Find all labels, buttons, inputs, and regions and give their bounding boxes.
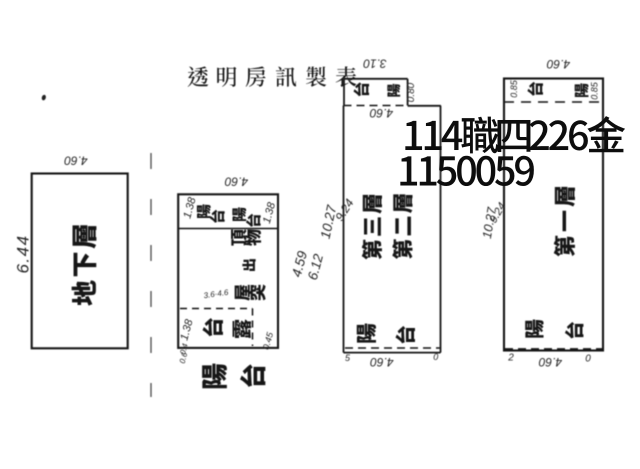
svg-text:2: 2 — [507, 353, 514, 364]
svg-text:0: 0 — [433, 352, 438, 362]
svg-text:0.85: 0.85 — [590, 81, 600, 100]
svg-text:4.60: 4.60 — [546, 57, 570, 71]
svg-text:4.60: 4.60 — [64, 154, 88, 168]
svg-text:0.80: 0.80 — [406, 82, 417, 102]
svg-text:4.60: 4.60 — [369, 106, 393, 120]
svg-text:4.60: 4.60 — [224, 175, 248, 189]
svg-text:4.60: 4.60 — [538, 355, 562, 369]
svg-text:3.10: 3.10 — [363, 57, 387, 71]
svg-text:0.85: 0.85 — [509, 79, 519, 98]
svg-text:0: 0 — [585, 354, 591, 365]
svg-text:4.60: 4.60 — [370, 355, 394, 369]
svg-text:6.44: 6.44 — [14, 234, 33, 273]
